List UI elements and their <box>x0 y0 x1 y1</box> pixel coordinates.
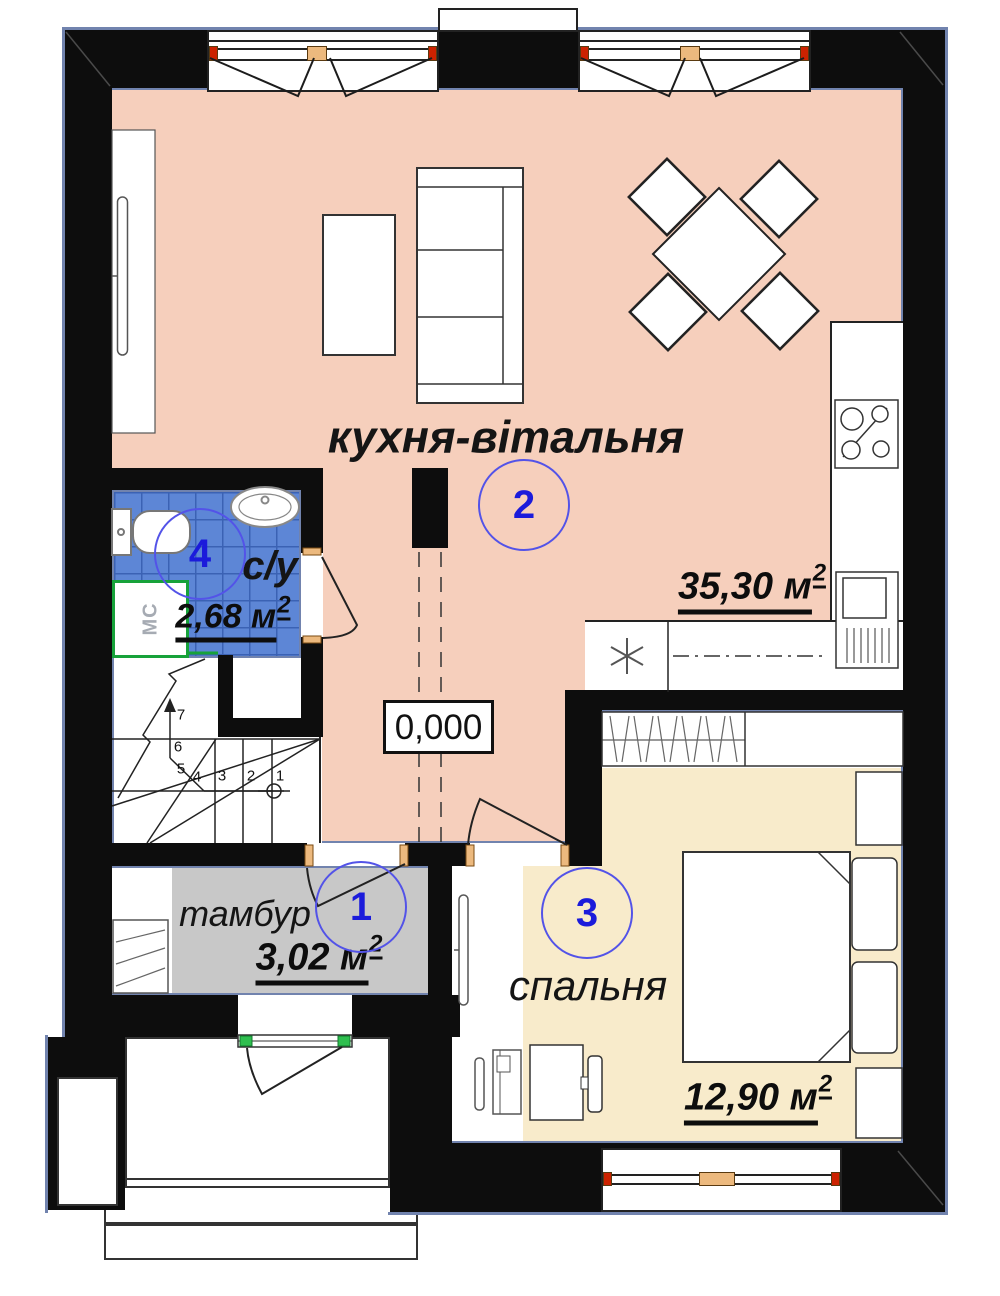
room-number-4: 4 <box>154 508 246 600</box>
room-number-value: 4 <box>189 534 211 574</box>
room-number-2: 2 <box>478 459 570 551</box>
stair-step-number: 4 <box>193 770 201 785</box>
room-number-1: 1 <box>315 861 407 953</box>
room-label-bathroom: с/у <box>242 546 298 586</box>
bathroom-door <box>303 548 357 643</box>
stair-step-number: 1 <box>276 769 284 784</box>
sofa <box>417 168 523 403</box>
washbasin <box>231 487 299 527</box>
room-label-kitchen-living: кухня-вітальня <box>328 415 684 460</box>
room-number-value: 3 <box>576 893 598 933</box>
area-bedroom: 12,90 м2 <box>684 1079 832 1126</box>
room-number-value: 1 <box>350 887 372 927</box>
elevation-mark: 0,000 <box>383 700 494 754</box>
stair-step-number: 3 <box>218 769 226 784</box>
area-exponent: 2 <box>819 1073 832 1100</box>
bedroom-door <box>466 799 569 866</box>
washing-machine-label: МС <box>140 602 160 635</box>
area-value: 35,30 м <box>678 568 812 615</box>
stair-step-number: 2 <box>247 769 255 784</box>
floor-plan: кухня-вітальня 0,000 МС с/у тамбур спаль… <box>0 0 1000 1296</box>
sink-symbol <box>611 638 643 674</box>
shoe-rack <box>113 920 168 993</box>
tv-niche <box>112 130 155 433</box>
coffee-table <box>323 215 395 355</box>
entrance-door <box>238 1035 352 1094</box>
area-kitchen-living: 35,30 м2 <box>678 568 826 615</box>
column-axis-dashes <box>419 552 441 843</box>
area-value: 12,90 м <box>684 1079 818 1126</box>
area-exponent: 2 <box>277 594 290 621</box>
wardrobe <box>602 712 903 766</box>
fridge <box>836 572 898 668</box>
room-number-3: 3 <box>541 867 633 959</box>
stair-step-number: 6 <box>174 740 182 755</box>
room-label-vestibule: тамбур <box>179 896 311 932</box>
elevation-value: 0,000 <box>395 710 483 745</box>
area-exponent: 2 <box>813 562 826 589</box>
dining-set <box>629 159 818 350</box>
stair-step-number: 7 <box>177 708 185 723</box>
room-number-value: 2 <box>513 485 535 525</box>
window-swing-lines <box>210 58 804 96</box>
area-value: 2,68 м <box>175 600 276 643</box>
cooktop <box>835 400 898 468</box>
room-label-bedroom: спальня <box>509 965 667 1007</box>
area-bathroom: 2,68 м2 <box>175 600 290 643</box>
staircase <box>112 659 320 843</box>
bedroom-tv <box>454 895 468 1005</box>
tv-cabinet <box>475 1050 521 1114</box>
stair-step-number: 5 <box>177 762 185 777</box>
desk-and-chair <box>530 1045 602 1120</box>
